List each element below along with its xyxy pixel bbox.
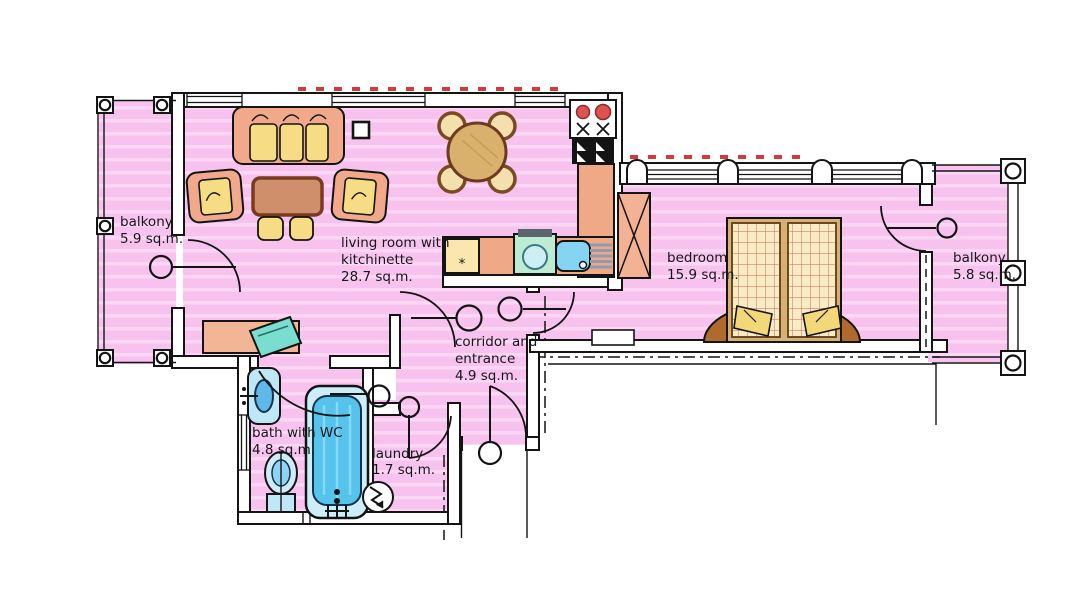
label-laundry: laundry: [372, 446, 423, 462]
water-heater-icon: [363, 482, 393, 512]
double-bed: [727, 218, 841, 342]
pouf: [258, 217, 283, 240]
wall: [172, 93, 622, 107]
label-balcony-right: balkony: [953, 250, 1006, 266]
sofa: [233, 107, 344, 164]
label-living-line2: kitchinette: [341, 252, 413, 268]
floor-plan: *: [0, 0, 1079, 599]
dining-table: [448, 123, 506, 181]
stove: [570, 100, 616, 164]
label-living-area: 28.7 sq.m.: [341, 269, 413, 285]
wall-box: [353, 122, 369, 138]
low-cabinet: [592, 330, 634, 345]
toilet: [265, 452, 297, 512]
label-bath-area: 4.8 sq.m.: [252, 442, 315, 458]
label-living-line1: living room with: [341, 235, 450, 251]
fridge-symbol: *: [459, 256, 466, 272]
bath-faucet: [325, 505, 349, 517]
pouf: [290, 217, 313, 240]
wall: [620, 163, 935, 184]
wall: [172, 93, 184, 235]
wardrobe: [618, 193, 650, 278]
burner: [596, 105, 611, 120]
wall: [527, 287, 539, 292]
label-laundry-area: 1.7 sq.m.: [372, 462, 435, 478]
dishwasher: [514, 229, 556, 274]
fridge: *: [445, 239, 479, 273]
boundary-line: [548, 364, 936, 425]
floor-plan-page: *: [0, 0, 1079, 599]
wall: [390, 315, 400, 368]
coffee-table: [253, 178, 322, 215]
label-balcony-right-area: 5.8 sq.m.: [953, 267, 1016, 283]
tv-cabinet: [203, 317, 301, 357]
kitchen-sink: [556, 241, 590, 271]
burner: [577, 106, 590, 119]
dining-set: [439, 113, 515, 192]
label-corridor-line1: corridor and: [455, 334, 537, 350]
wall: [526, 437, 539, 450]
armchair: [186, 169, 244, 224]
bathtub: [306, 386, 368, 518]
label-bedroom: bedroom: [667, 250, 727, 266]
label-balcony-left: balkony: [120, 214, 173, 230]
label-bedroom-area: 15.9 sq.m.: [667, 267, 739, 283]
label-balcony-left-area: 5.9 sq.m.: [120, 231, 183, 247]
wall: [920, 184, 932, 205]
label-corridor-line2: entrance: [455, 351, 515, 367]
label-bath: bath with WC: [252, 425, 343, 441]
label-corridor-area: 4.9 sq.m.: [455, 368, 518, 384]
armchair: [331, 169, 389, 224]
